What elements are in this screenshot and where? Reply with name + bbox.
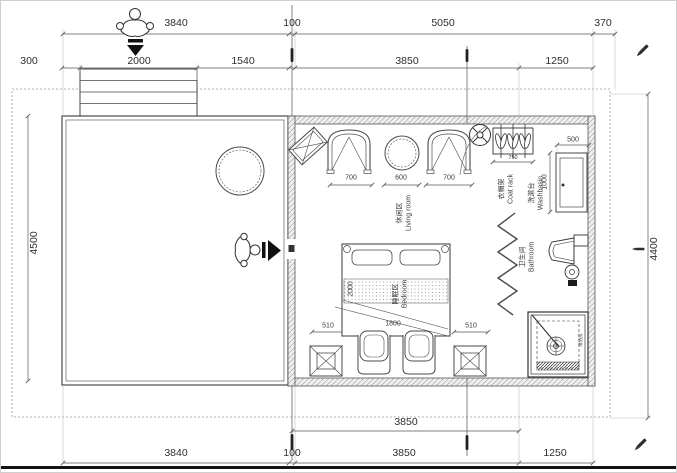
dim-bed-2000: 2000 xyxy=(348,281,355,297)
living-armchair-right xyxy=(427,130,471,174)
dim-top-3840: 3840 xyxy=(164,17,187,29)
living-armchair-left xyxy=(327,130,371,174)
label-shower: 淋浴房 xyxy=(578,333,584,347)
label-washbasin: 洗漱台 Washbasin xyxy=(528,176,546,210)
label-coat-rack-zh: 衣帽架 xyxy=(498,174,507,204)
entry-arrow-icon xyxy=(127,39,144,56)
label-bedroom-zh: 睡眠区 xyxy=(392,280,401,308)
dim-nightstand-510-right: 510 xyxy=(465,323,477,330)
nightstand-right xyxy=(454,346,486,376)
dim-chair-700: 700 xyxy=(443,175,455,182)
floor-plan-drawing xyxy=(1,1,677,473)
dim-left-4500: 4500 xyxy=(28,231,40,254)
dim-top2-2000: 2000 xyxy=(127,55,150,67)
washbasin-fixture xyxy=(556,153,587,212)
dim-bottom-1250: 1250 xyxy=(543,447,566,459)
bed-foot-stool-right xyxy=(403,331,435,374)
dim-top-5050: 5050 xyxy=(431,17,454,29)
floor-plan-canvas: 3840 100 5050 370 300 2000 1540 3850 125… xyxy=(0,0,677,473)
side-entry-arrow-icon xyxy=(262,240,281,261)
label-washbasin-en: Washbasin xyxy=(537,176,546,210)
label-bathroom: 卫生间 Bathroom xyxy=(519,242,537,272)
pencil-marker-icon xyxy=(632,248,644,251)
label-living-room-zh: 休闲区 xyxy=(396,195,405,231)
label-bathroom-zh: 卫生间 xyxy=(519,242,528,272)
pillow xyxy=(400,250,440,265)
dim-top-370: 370 xyxy=(594,17,612,29)
person-side-entry-icon xyxy=(235,233,260,266)
bed-foot-stool-left xyxy=(358,331,390,374)
central-wall-door xyxy=(287,239,296,259)
dim-right-4400: 4400 xyxy=(648,237,660,260)
dim-bottom-3850: 3850 xyxy=(392,447,415,459)
person-top-view-icon xyxy=(117,9,154,37)
dim-bed-1800: 1800 xyxy=(385,321,401,328)
shower-threshold xyxy=(537,362,579,370)
nightstand-left xyxy=(310,346,342,376)
pencil-marker-icon xyxy=(634,438,647,451)
dim-top-100: 100 xyxy=(283,17,301,29)
living-round-table xyxy=(385,136,419,170)
entrance-steps xyxy=(80,69,197,116)
dim-chair-700: 700 xyxy=(345,175,357,182)
label-coat-rack-en: Coat rack xyxy=(507,174,516,204)
pencil-marker-icon xyxy=(636,44,649,57)
label-living-room: 休闲区 Living room xyxy=(396,195,414,231)
coat-rack xyxy=(493,124,533,158)
label-living-room-en: Living room xyxy=(405,195,414,231)
page-bottom-rule xyxy=(1,466,677,469)
label-bedroom-en: Bedroom xyxy=(401,280,410,308)
dim-top2-300: 300 xyxy=(20,55,38,67)
dim-top2-1250: 1250 xyxy=(545,55,568,67)
ceiling-fan-icon xyxy=(470,125,491,146)
floor-drain-icon xyxy=(547,337,565,355)
pillow xyxy=(352,250,392,265)
label-washbasin-zh: 洗漱台 xyxy=(528,176,537,210)
label-coat-rack: 衣帽架 Coat rack xyxy=(498,174,516,204)
dim-nightstand-510-left: 510 xyxy=(322,323,334,330)
round-table xyxy=(216,147,264,195)
toilet-fixture xyxy=(549,235,588,286)
dim-table-600: 600 xyxy=(395,175,407,182)
axis-lines xyxy=(291,5,469,461)
label-shower-zh: 淋浴房 xyxy=(578,333,584,347)
dim-bottom-3840: 3840 xyxy=(164,447,187,459)
dim-top2-1540: 1540 xyxy=(231,55,254,67)
label-bathroom-en: Bathroom xyxy=(528,242,537,272)
dim-bottom-100: 100 xyxy=(283,447,301,459)
dim-washbasin-500: 500 xyxy=(567,137,579,144)
dim-coatrack-750: 750 xyxy=(508,155,517,161)
dim-top2-3850: 3850 xyxy=(395,55,418,67)
folding-partition xyxy=(498,213,517,315)
dim-bottom-inner-3850: 3850 xyxy=(394,416,417,428)
label-bedroom: 睡眠区 Bedroom xyxy=(392,280,410,308)
